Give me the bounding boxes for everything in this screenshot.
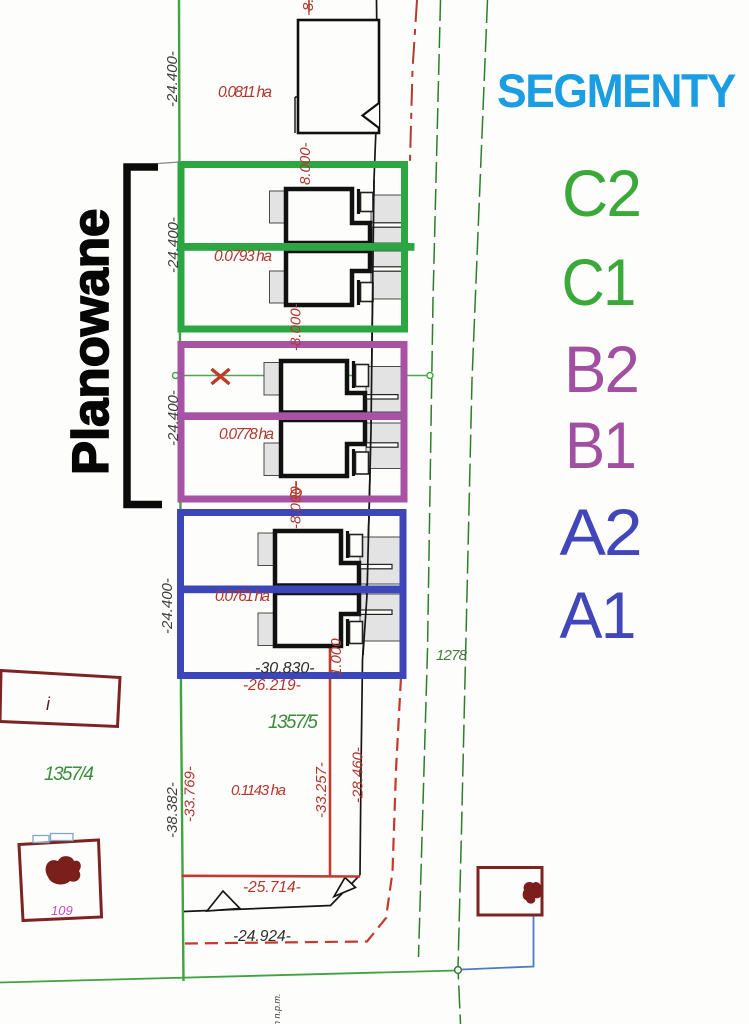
svg-text:.4m n.p.m.: .4m n.p.m.	[272, 993, 282, 1024]
svg-text:SEGMENTY: SEGMENTY	[497, 64, 736, 117]
svg-text:-25.714-: -25.714-	[243, 879, 301, 896]
svg-text:-24.400-: -24.400-	[159, 578, 176, 634]
svg-text:-26.219-: -26.219-	[243, 677, 301, 694]
svg-text:A2: A2	[560, 495, 641, 569]
svg-text:B2: B2	[564, 332, 638, 406]
svg-text:-24.400-: -24.400-	[165, 217, 182, 273]
svg-text:-24.400-: -24.400-	[165, 390, 182, 446]
svg-text:0.0793 ha: 0.0793 ha	[214, 248, 272, 265]
svg-text:A1: A1	[560, 578, 635, 652]
svg-text:0.0778 ha: 0.0778 ha	[219, 426, 274, 443]
svg-text:Planowane: Planowane	[62, 209, 119, 475]
svg-text:-30.830-: -30.830-	[255, 660, 315, 677]
svg-text:109: 109	[51, 903, 73, 918]
svg-text:8.000-: 8.000-	[297, 142, 314, 185]
svg-text:C2: C2	[562, 156, 640, 230]
svg-text:C1: C1	[562, 245, 635, 319]
svg-text:-24.924-: -24.924-	[233, 928, 291, 945]
svg-text:-33.257-: -33.257-	[313, 762, 330, 818]
svg-text:-24.400-: -24.400-	[164, 51, 181, 107]
svg-text:0.0761 ha: 0.0761 ha	[215, 588, 270, 605]
svg-text:0.0811 ha: 0.0811 ha	[218, 84, 272, 101]
svg-text:-38.382-: -38.382-	[164, 782, 181, 838]
svg-text:1357/5: 1357/5	[268, 712, 318, 733]
svg-text:-28.460-: -28.460-	[350, 747, 367, 803]
svg-text:-33.769-: -33.769-	[182, 766, 199, 822]
svg-text:-8.000-: -8.000-	[288, 303, 305, 351]
svg-text:1.000: 1.000	[328, 638, 345, 676]
svg-text:1357/4: 1357/4	[44, 764, 94, 785]
svg-text:1278: 1278	[436, 647, 468, 664]
svg-text:B1: B1	[565, 408, 635, 482]
svg-text:0.1143 ha: 0.1143 ha	[231, 782, 286, 799]
